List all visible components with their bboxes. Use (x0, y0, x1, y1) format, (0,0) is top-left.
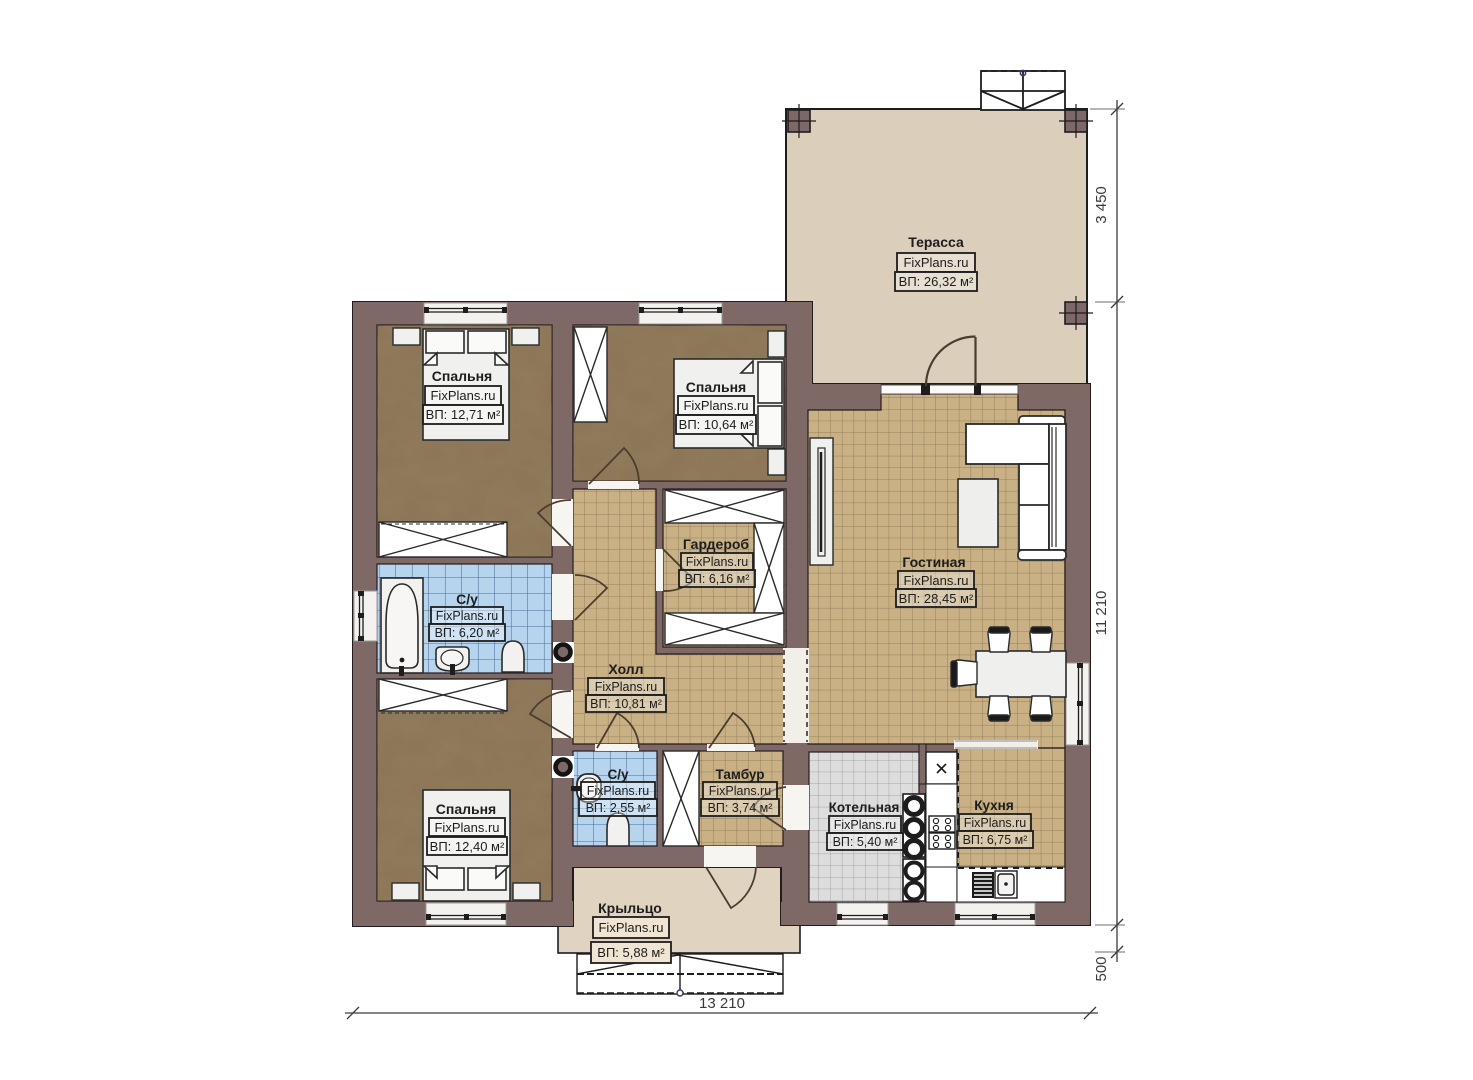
svg-text:ВП: 2,55 м²: ВП: 2,55 м² (586, 801, 651, 815)
svg-text:ВП: 5,40 м²: ВП: 5,40 м² (833, 835, 898, 849)
svg-text:Кухня: Кухня (974, 798, 1013, 813)
svg-text:FixPlans.ru: FixPlans.ru (709, 784, 772, 798)
svg-text:FixPlans.ru: FixPlans.ru (903, 255, 968, 270)
svg-text:Терасса: Терасса (908, 234, 964, 250)
svg-text:ВП: 5,88 м²: ВП: 5,88 м² (597, 945, 665, 960)
svg-text:500: 500 (1093, 956, 1110, 981)
svg-text:Спальня: Спальня (432, 368, 492, 384)
svg-text:С/у: С/у (607, 767, 629, 782)
svg-text:ВП: 12,71 м²: ВП: 12,71 м² (426, 407, 501, 422)
svg-text:ВП: 10,81 м²: ВП: 10,81 м² (590, 697, 662, 711)
svg-text:FixPlans.ru: FixPlans.ru (903, 573, 968, 588)
svg-text:11 210: 11 210 (1093, 591, 1110, 636)
svg-text:Холл: Холл (608, 661, 643, 677)
svg-text:ВП: 3,74 м²: ВП: 3,74 м² (708, 801, 773, 815)
svg-text:FixPlans.ru: FixPlans.ru (683, 398, 748, 413)
svg-text:ВП: 10,64 м²: ВП: 10,64 м² (679, 417, 754, 432)
svg-text:FixPlans.ru: FixPlans.ru (587, 784, 650, 798)
svg-text:13 210: 13 210 (699, 995, 745, 1012)
svg-text:С/у: С/у (456, 591, 478, 607)
svg-text:FixPlans.ru: FixPlans.ru (430, 388, 495, 403)
svg-text:FixPlans.ru: FixPlans.ru (964, 816, 1027, 830)
svg-text:Котельная: Котельная (829, 800, 900, 815)
svg-text:ВП: 26,32 м²: ВП: 26,32 м² (899, 274, 974, 289)
svg-text:FixPlans.ru: FixPlans.ru (686, 555, 749, 569)
svg-text:Гостиная: Гостиная (902, 554, 965, 570)
svg-text:FixPlans.ru: FixPlans.ru (598, 920, 663, 935)
svg-text:FixPlans.ru: FixPlans.ru (436, 609, 499, 623)
svg-text:Спальня: Спальня (686, 379, 746, 395)
svg-text:ВП: 6,75 м²: ВП: 6,75 м² (963, 833, 1028, 847)
svg-text:Крыльцо: Крыльцо (598, 900, 662, 916)
svg-text:Спальня: Спальня (436, 801, 496, 817)
svg-text:FixPlans.ru: FixPlans.ru (434, 820, 499, 835)
svg-text:FixPlans.ru: FixPlans.ru (834, 818, 897, 832)
svg-text:ВП: 12,40 м²: ВП: 12,40 м² (430, 839, 505, 854)
svg-text:ВП: 28,45 м²: ВП: 28,45 м² (899, 591, 974, 606)
svg-text:Гардероб: Гардероб (683, 536, 750, 552)
svg-text:ВП: 6,16 м²: ВП: 6,16 м² (685, 572, 750, 586)
svg-text:FixPlans.ru: FixPlans.ru (595, 680, 658, 694)
svg-text:ВП: 6,20 м²: ВП: 6,20 м² (435, 626, 500, 640)
svg-text:Тамбур: Тамбур (716, 767, 765, 782)
svg-text:3 450: 3 450 (1093, 186, 1110, 224)
